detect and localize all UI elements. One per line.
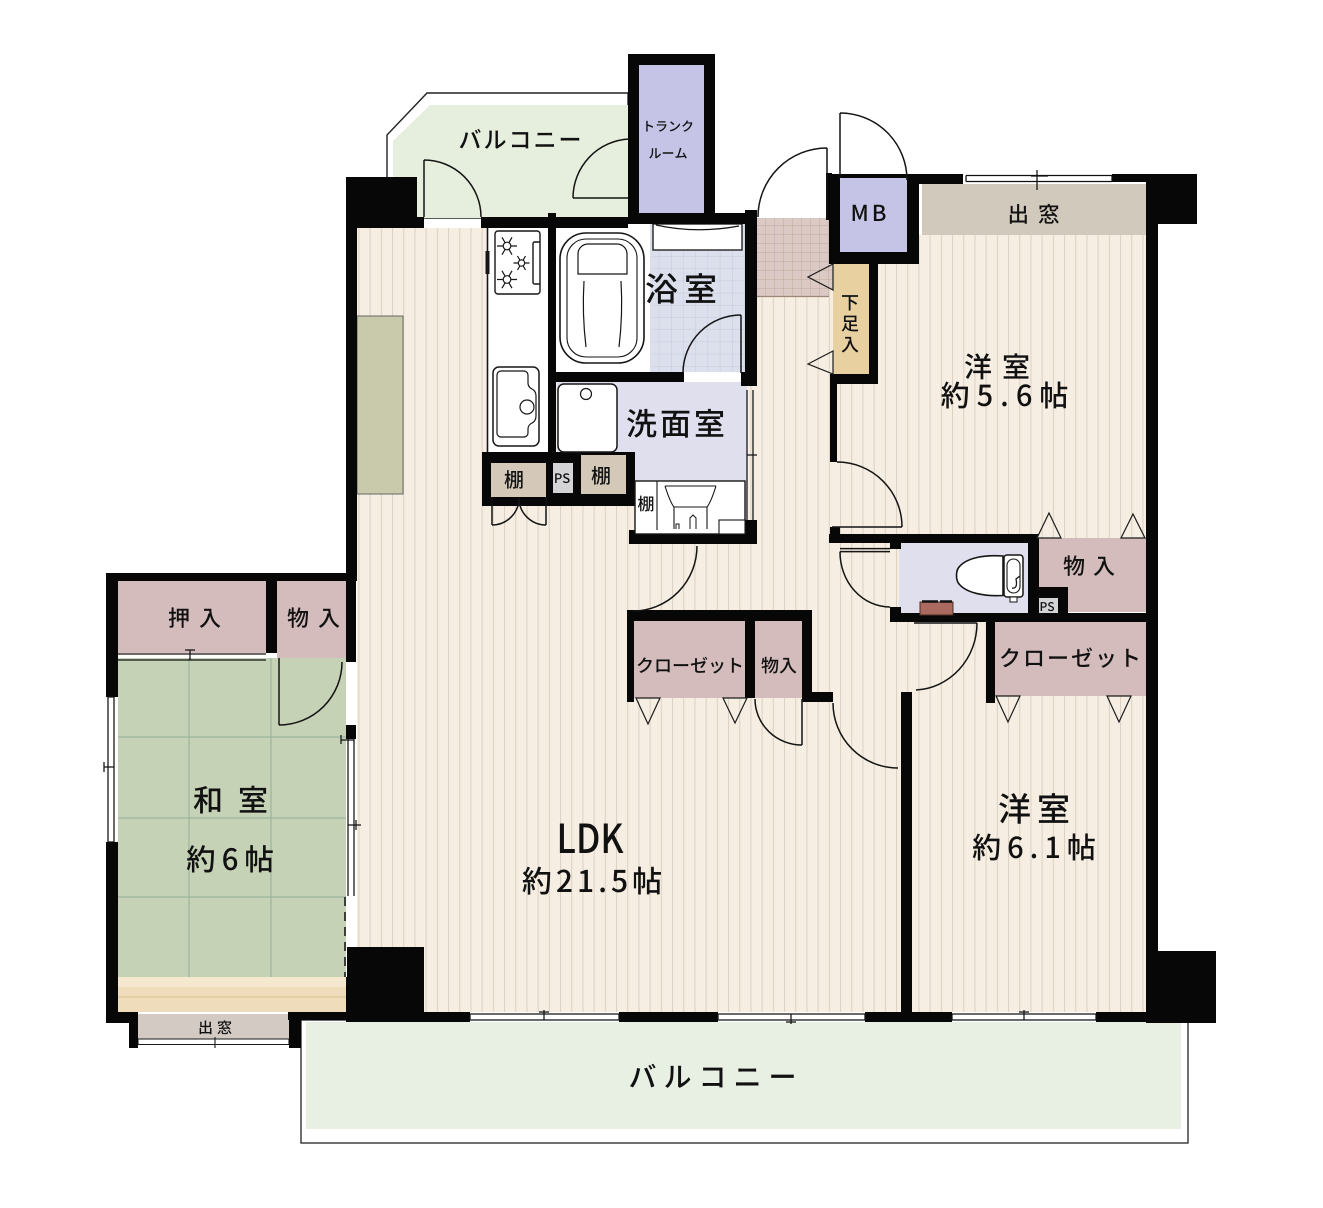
svg-text:入: 入	[841, 331, 859, 357]
svg-text:約5.6帖: 約5.6帖	[941, 373, 1076, 415]
svg-text:物入: 物入	[287, 601, 349, 633]
svg-text:バルコニー: バルコニー	[459, 121, 584, 155]
svg-text:クローゼット: クローゼット	[999, 641, 1143, 673]
svg-text:トランク: トランク	[642, 116, 694, 135]
svg-text:洗面室: 洗面室	[626, 399, 728, 444]
svg-text:押入: 押入	[168, 601, 230, 633]
svg-text:和室: 和室	[193, 776, 283, 820]
svg-text:棚: 棚	[591, 460, 611, 489]
svg-text:棚: 棚	[638, 490, 655, 515]
svg-text:クローゼット: クローゼット	[636, 652, 744, 678]
svg-text:出窓: 出窓	[198, 1017, 236, 1038]
svg-text:約21.5帖: 約21.5帖	[522, 857, 666, 901]
svg-text:約6帖: 約6帖	[186, 837, 280, 879]
svg-text:洋室: 洋室	[998, 783, 1076, 831]
svg-text:バルコニー: バルコニー	[628, 1056, 803, 1096]
svg-text:MB: MB	[851, 196, 890, 228]
svg-text:PS: PS	[554, 468, 570, 487]
svg-text:物入: 物入	[761, 652, 797, 678]
svg-text:出窓: 出窓	[1007, 198, 1068, 229]
svg-text:PS: PS	[1039, 598, 1054, 615]
svg-text:ルーム: ルーム	[648, 143, 687, 162]
svg-text:物入: 物入	[1063, 549, 1123, 581]
svg-text:約6.1帖: 約6.1帖	[972, 825, 1102, 867]
svg-text:棚: 棚	[504, 464, 524, 493]
svg-text:浴室: 浴室	[645, 263, 723, 311]
